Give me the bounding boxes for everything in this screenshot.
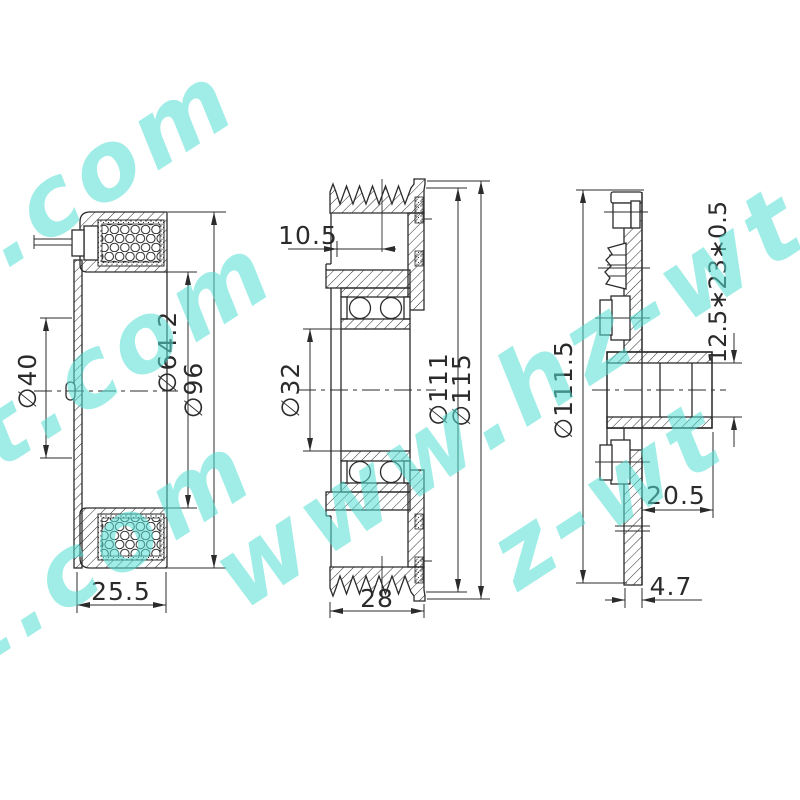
dim-plate-thickness-label: 4.7 bbox=[650, 572, 693, 601]
dim-groove-offset-label: 10.5 bbox=[278, 221, 338, 250]
coil-winding-top bbox=[102, 224, 160, 262]
drawing-canvas: ∅40 ∅64.2 ∅96 25.5 bbox=[0, 0, 800, 800]
dim-pulley-width-label: 28 bbox=[360, 584, 394, 613]
dim-pulley-bore-label: ∅32 bbox=[276, 362, 305, 419]
technical-drawing: ∅40 ∅64.2 ∅96 25.5 bbox=[0, 0, 800, 800]
